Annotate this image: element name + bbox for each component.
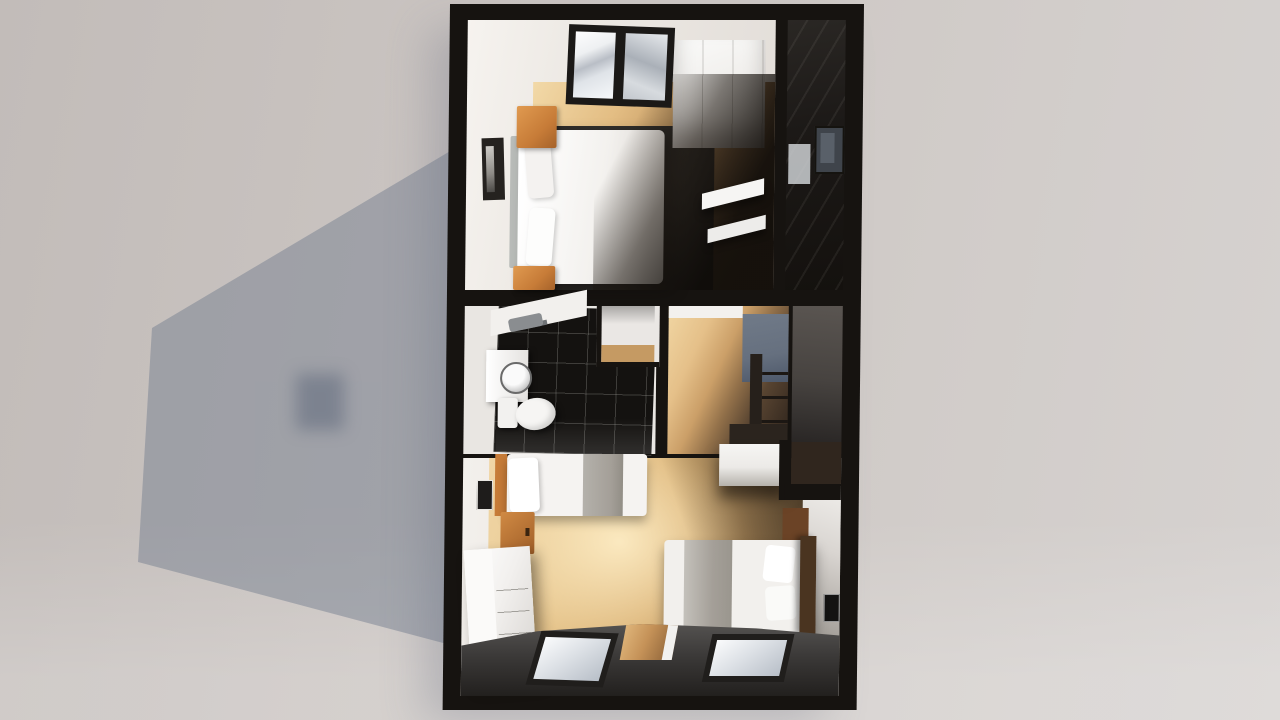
picture-frame — [814, 126, 845, 174]
single-bed — [663, 540, 816, 632]
picture-frame — [477, 480, 493, 510]
skylight-window — [526, 631, 619, 688]
doorway-opening — [663, 440, 779, 460]
room-closet — [596, 306, 660, 367]
picture-frame — [824, 594, 840, 622]
pillow — [765, 585, 797, 621]
single-bed — [507, 454, 648, 516]
pillow — [508, 457, 540, 512]
closet-shadow — [602, 306, 655, 324]
window-pane — [709, 640, 787, 676]
stair-rail — [762, 372, 788, 375]
render-viewport — [0, 0, 1280, 720]
floorplan — [443, 4, 864, 710]
pillow — [524, 141, 554, 199]
gray-blanket — [583, 454, 624, 516]
skylight-window — [702, 634, 795, 682]
window-pane — [533, 637, 611, 681]
skylight-window — [566, 24, 676, 108]
stair-rail — [762, 420, 788, 423]
picture-frame — [482, 138, 506, 201]
round-mirror — [500, 362, 532, 394]
closet-wood-floor — [601, 345, 654, 362]
shadow-detail-square — [296, 374, 344, 430]
shadowed-wall-face — [791, 306, 843, 454]
storage-box — [788, 144, 810, 184]
pillow — [525, 207, 556, 267]
room-stairwell-top — [785, 20, 846, 290]
interior-wall — [785, 484, 841, 500]
window-pane — [623, 33, 668, 100]
stair-rail — [762, 396, 788, 399]
room-bathroom — [463, 306, 657, 454]
hall-wall-top — [669, 306, 743, 318]
window-pane — [573, 31, 616, 98]
bed-frame-wood — [495, 454, 508, 516]
room-hallway — [667, 306, 789, 454]
nightstand — [516, 106, 556, 148]
bed-headboard — [799, 536, 816, 634]
gray-blanket — [683, 540, 732, 632]
room-bedroom-top — [465, 20, 776, 290]
pillow — [762, 545, 796, 584]
nightstand — [513, 266, 555, 290]
closet-nook — [791, 442, 841, 486]
